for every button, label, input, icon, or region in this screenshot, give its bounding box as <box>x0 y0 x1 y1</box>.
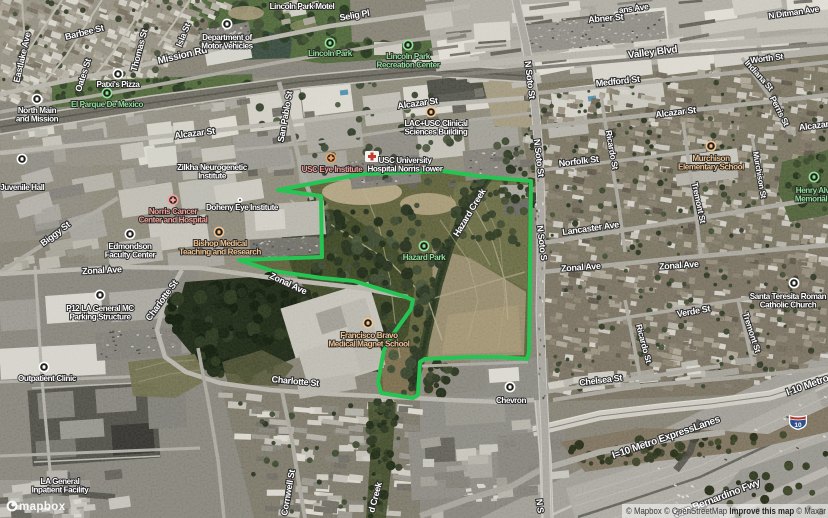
svg-text:Hazard Park: Hazard Park <box>403 253 446 262</box>
svg-text:© Mapbox © OpenStreetMap Impro: © Mapbox © OpenStreetMap Improve this ma… <box>626 506 826 516</box>
svg-text:Memorial Park: Memorial Park <box>795 195 828 204</box>
svg-text:Motor Vehicles: Motor Vehicles <box>201 42 253 51</box>
svg-text:Faculty Center: Faculty Center <box>105 251 157 260</box>
svg-text:USC Eye Institute: USC Eye Institute <box>302 165 364 174</box>
svg-text:Teaching and Research: Teaching and Research <box>179 248 261 257</box>
svg-text:mapbox: mapbox <box>19 501 66 513</box>
svg-text:Lincoln Park Motel: Lincoln Park Motel <box>270 2 335 11</box>
svg-text:Lincoln Park: Lincoln Park <box>308 49 353 58</box>
svg-text:and Mission: and Mission <box>16 115 59 124</box>
svg-text:Catholic Church: Catholic Church <box>760 301 817 310</box>
svg-text:Recreation Center: Recreation Center <box>377 61 441 70</box>
svg-text:ral Juvenile Hall: ral Juvenile Hall <box>0 183 45 192</box>
svg-text:Doheny Eye Institute: Doheny Eye Institute <box>206 203 279 212</box>
svg-text:Parking Structure: Parking Structure <box>69 313 131 322</box>
svg-text:Inpatient Facility: Inpatient Facility <box>32 486 90 495</box>
svg-text:N S: N S <box>534 498 546 514</box>
svg-text:Chevron: Chevron <box>496 396 526 405</box>
svg-text:Outpatient Clinic: Outpatient Clinic <box>18 374 77 383</box>
svg-text:Medical Magnet School: Medical Magnet School <box>328 340 409 349</box>
svg-text:El Parque De Mexico: El Parque De Mexico <box>71 100 143 109</box>
svg-text:Hospital Norris Tower: Hospital Norris Tower <box>367 165 443 174</box>
svg-text:Center and Hospital: Center and Hospital <box>139 216 208 225</box>
svg-text:Sciences Building: Sciences Building <box>405 128 468 137</box>
svg-text:10: 10 <box>794 422 802 429</box>
svg-text:Institute: Institute <box>198 172 227 181</box>
svg-text:Patxi's Pizza: Patxi's Pizza <box>96 80 140 89</box>
svg-text:Elementary School: Elementary School <box>678 163 744 172</box>
svg-text:Zonal Ave: Zonal Ave <box>82 264 122 276</box>
